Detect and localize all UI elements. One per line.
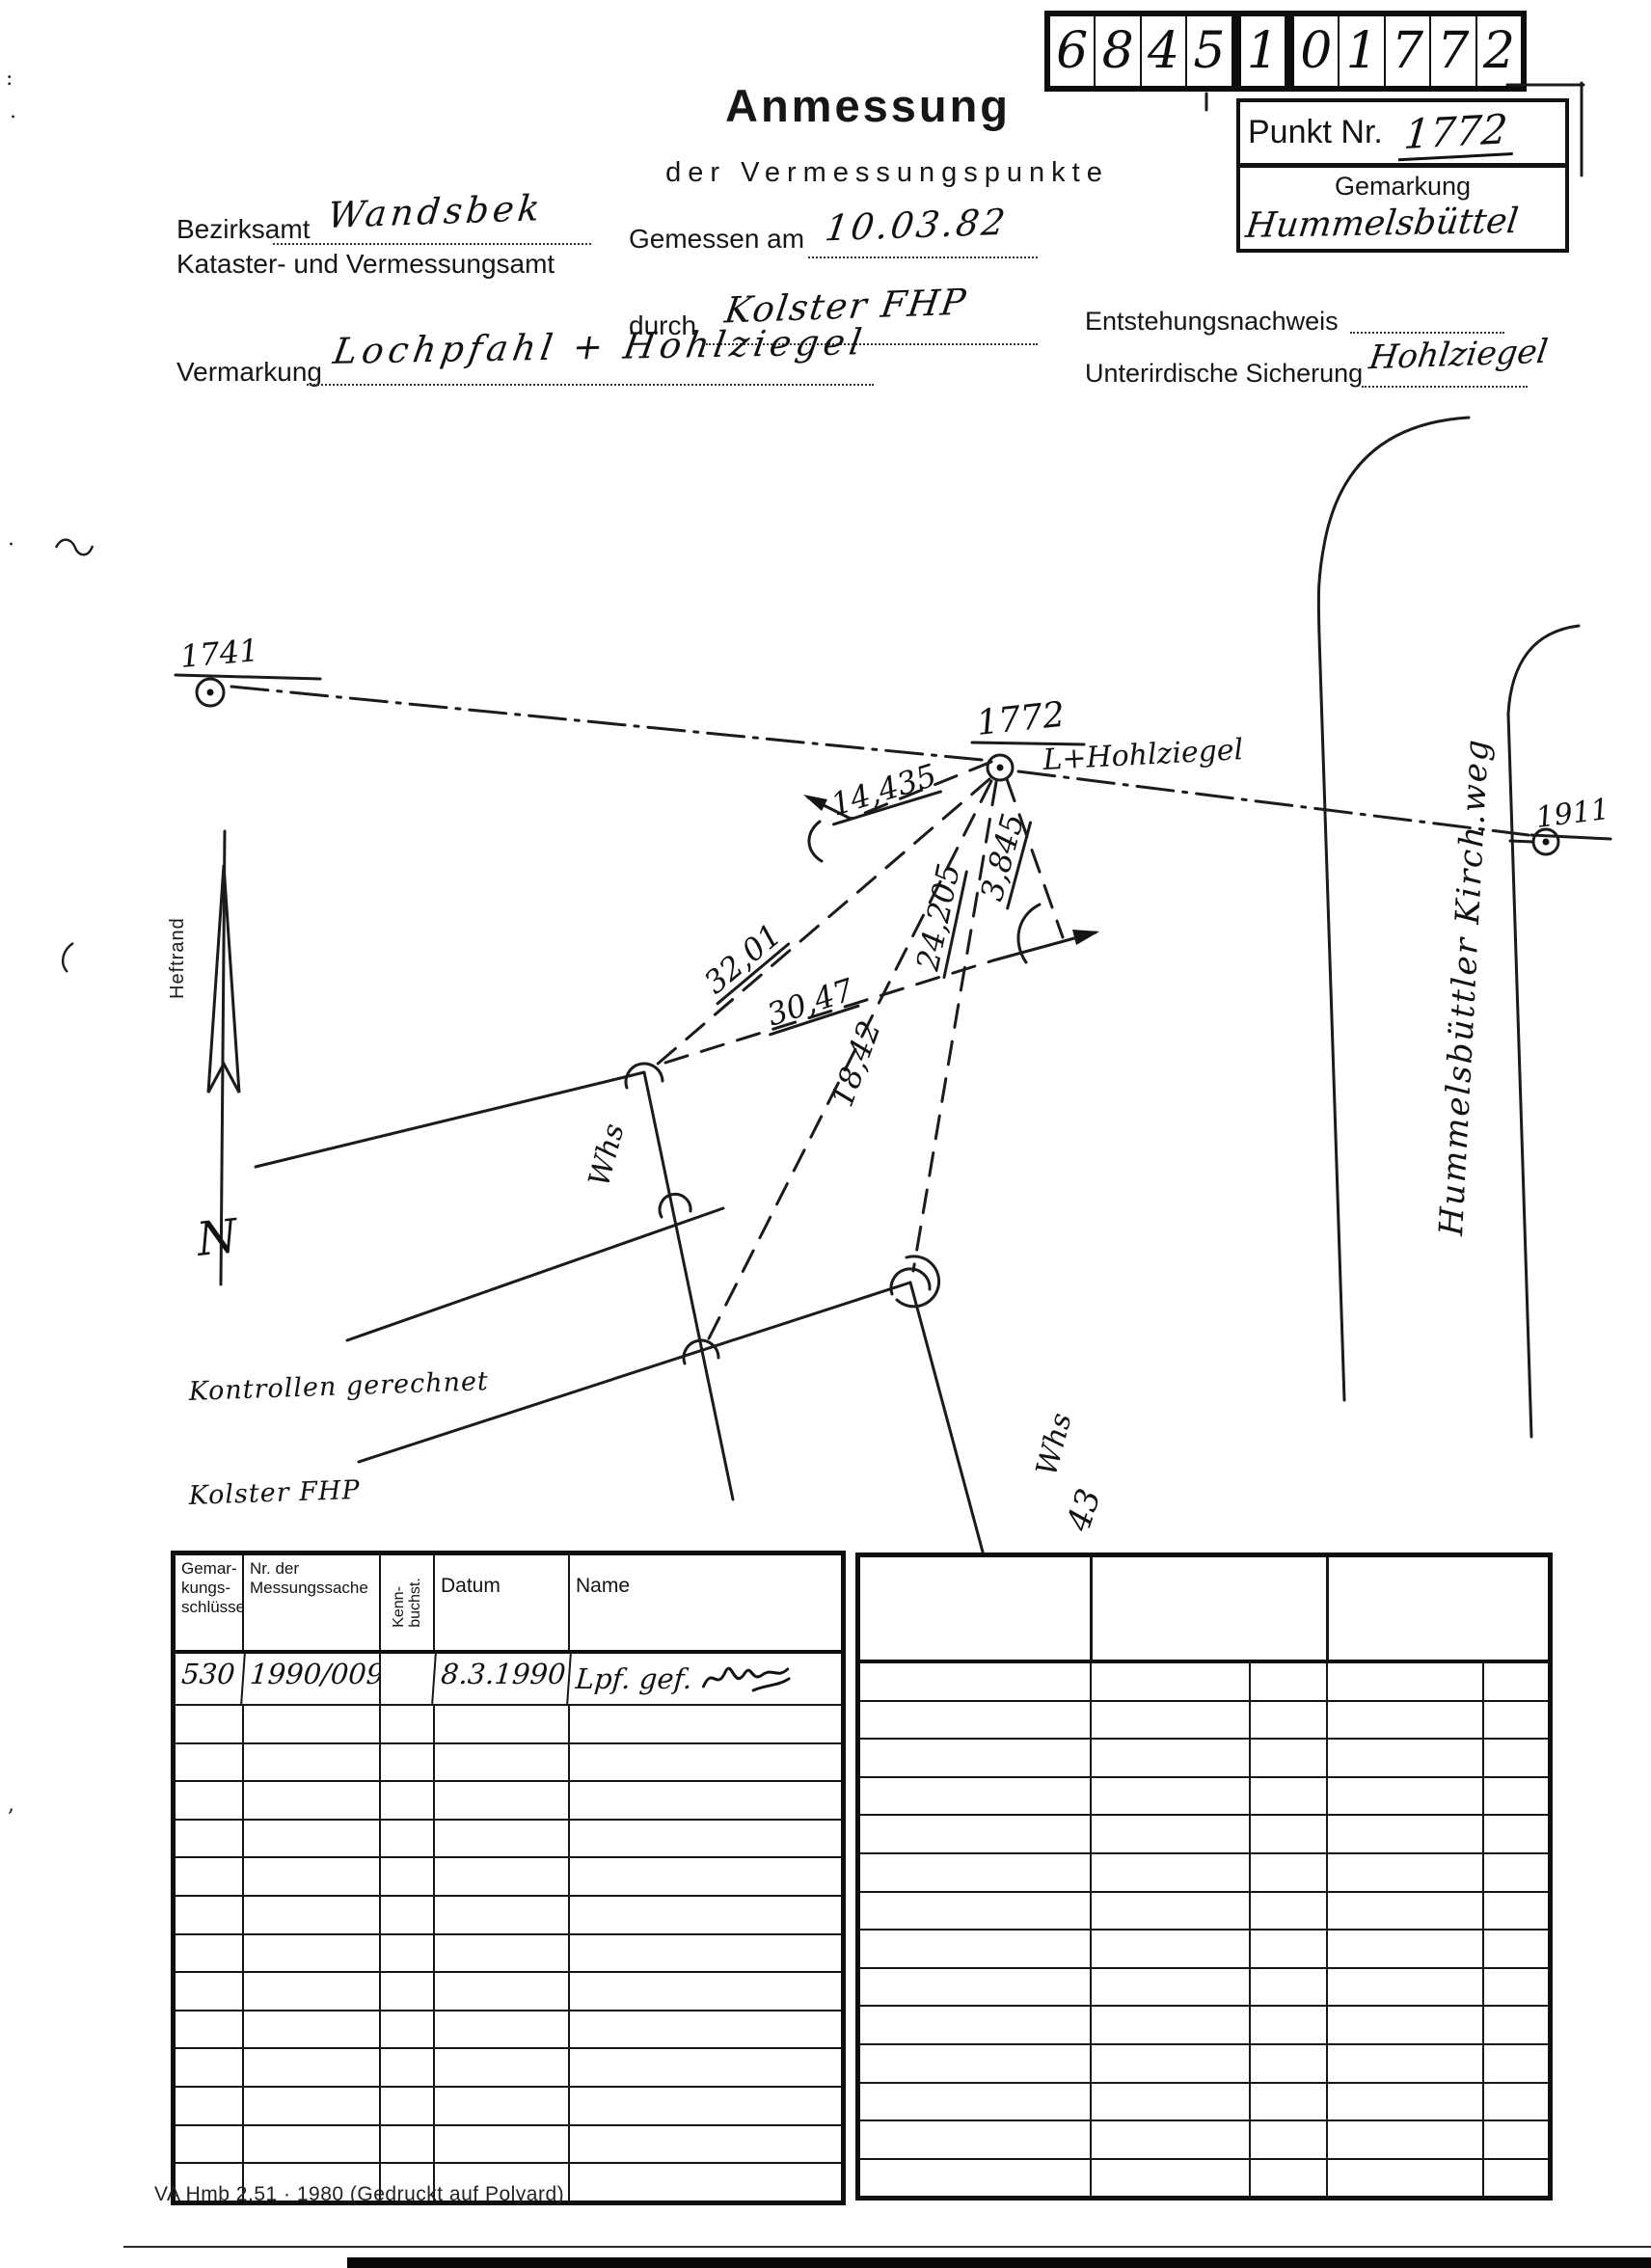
table-empty-cell — [1326, 2045, 1482, 2082]
table-empty-cell — [1326, 2007, 1482, 2043]
point-1741-underline — [176, 675, 320, 679]
table-empty-cell — [1249, 1740, 1326, 1776]
scanned-survey-form: 6 8 4 5 1 0 1 7 7 2 Anmessung der Vermes… — [0, 0, 1651, 2268]
table-empty-cell — [1482, 1702, 1548, 1739]
log-cell-schluessel: 530 — [174, 1654, 244, 1704]
table-empty-cell — [1090, 1702, 1249, 1739]
table-empty-cell — [1249, 2160, 1326, 2197]
right-table-empty-rows — [860, 1663, 1548, 2196]
table-empty-cell — [242, 1858, 379, 1895]
table-empty-cell — [242, 2126, 379, 2163]
distance-label-14-435: 14,435 — [826, 757, 940, 823]
table-empty-cell — [1326, 1778, 1482, 1815]
scan-speck: . — [10, 99, 16, 123]
continuation-header-cell — [1326, 1557, 1548, 1660]
table-empty-cell — [1249, 1663, 1326, 1700]
table-empty-row — [860, 2045, 1548, 2084]
table-empty-cell — [1326, 1930, 1482, 1967]
measure-arrow-head — [1072, 930, 1099, 945]
table-empty-cell — [1326, 1893, 1482, 1930]
table-empty-cell — [1090, 1740, 1249, 1776]
table-empty-cell — [568, 2049, 841, 2086]
note-line-1: Kontrollen gerechnet — [187, 1366, 489, 1407]
angle-arc-bearing — [809, 822, 822, 861]
binding-margin-label: Heftrand — [167, 917, 188, 999]
table-empty-cell — [379, 1744, 433, 1781]
scan-scribble — [56, 540, 93, 555]
table-empty-cell — [1482, 1663, 1548, 1700]
table-empty-cell — [242, 2011, 379, 2048]
table-empty-cell — [860, 1816, 1090, 1852]
table-empty-cell — [860, 1930, 1090, 1967]
table-empty-row — [176, 1935, 841, 1974]
road-edge-left — [1318, 418, 1469, 1400]
scan-scribble — [63, 943, 73, 972]
table-empty-cell — [379, 1973, 433, 2010]
north-label: N — [193, 1209, 242, 1267]
table-empty-cell — [379, 1706, 433, 1742]
table-empty-cell — [1249, 2045, 1326, 2082]
table-empty-cell — [379, 2011, 433, 2048]
table-empty-cell — [1090, 1663, 1249, 1700]
table-empty-cell — [242, 1897, 379, 1933]
log-cell-kennbuchst — [379, 1654, 433, 1704]
table-empty-cell — [1090, 1816, 1249, 1852]
table-empty-row — [176, 2126, 841, 2165]
log-table-row: 530 1990/009 8.3.1990 Lpf. gef. — [176, 1654, 841, 1706]
table-empty-cell — [860, 1663, 1090, 1700]
log-table-header: Gemar- kungs- schlüssel Nr. der Messungs… — [176, 1555, 841, 1654]
baseline-1741-1772 — [231, 687, 982, 760]
table-empty-cell — [176, 1858, 242, 1895]
log-table-empty-rows — [176, 1706, 841, 2200]
table-empty-cell — [379, 2088, 433, 2124]
table-empty-cell — [379, 1935, 433, 1972]
table-empty-cell — [1249, 2084, 1326, 2120]
table-empty-cell — [860, 1969, 1090, 2006]
table-empty-cell — [176, 1897, 242, 1933]
log-header-datum: Datum — [433, 1555, 568, 1650]
table-empty-row — [860, 1969, 1548, 2008]
street-name-label: Hummelsbüttler Kirch.weg — [1432, 737, 1497, 1237]
table-empty-cell — [379, 1782, 433, 1819]
table-empty-row — [176, 1821, 841, 1859]
table-empty-cell — [1090, 1778, 1249, 1815]
point-1911-underline — [1531, 835, 1610, 839]
measurement-log-table: Gemar- kungs- schlüssel Nr. der Messungs… — [171, 1551, 846, 2205]
point-dot-1911 — [1543, 839, 1550, 846]
table-empty-cell — [176, 2088, 242, 2124]
table-empty-row — [860, 2121, 1548, 2160]
table-empty-cell — [1249, 1702, 1326, 1739]
log-cell-name: Lpf. gef. — [566, 1654, 843, 1704]
table-empty-cell — [176, 1973, 242, 2010]
table-empty-cell — [860, 2007, 1090, 2043]
table-empty-cell — [176, 2126, 242, 2163]
table-empty-cell — [1482, 2121, 1548, 2158]
building-label-whs-left: Whs — [582, 1120, 632, 1190]
table-empty-cell — [860, 1893, 1090, 1930]
table-empty-row — [860, 1740, 1548, 1778]
table-empty-cell — [433, 1897, 568, 1933]
point-label-1911: 1911 — [1534, 793, 1611, 835]
distance-label-32-01: 32,01 — [697, 916, 789, 1001]
table-empty-cell — [433, 1858, 568, 1895]
table-empty-cell — [242, 1973, 379, 2010]
table-empty-cell — [1482, 1969, 1548, 2006]
table-empty-row — [176, 1744, 841, 1783]
table-empty-cell — [379, 2049, 433, 2086]
table-empty-cell — [860, 1702, 1090, 1739]
log-cell-datum: 8.3.1990 — [431, 1654, 570, 1704]
table-empty-cell — [1482, 2045, 1548, 2082]
table-empty-row — [860, 1854, 1548, 1893]
corner-arc-D — [660, 1194, 690, 1217]
table-empty-cell — [1249, 1969, 1326, 2006]
table-empty-cell — [1326, 2121, 1482, 2158]
table-empty-cell — [433, 1782, 568, 1819]
table-empty-cell — [860, 2045, 1090, 2082]
table-empty-cell — [379, 1858, 433, 1895]
baseline-1772-1911 — [1018, 771, 1529, 835]
point-dot-1741 — [207, 689, 214, 696]
point-label-1772: 1772 — [975, 695, 1067, 743]
table-empty-cell — [1482, 1778, 1548, 1815]
table-empty-cell — [433, 1706, 568, 1742]
table-empty-cell — [433, 1935, 568, 1972]
table-empty-row — [176, 2049, 841, 2088]
table-empty-row — [860, 2084, 1548, 2122]
table-empty-row — [860, 2007, 1548, 2045]
table-empty-cell — [1326, 1969, 1482, 2006]
table-empty-cell — [176, 1744, 242, 1781]
table-empty-cell — [433, 2011, 568, 2048]
table-empty-cell — [433, 2126, 568, 2163]
table-empty-cell — [379, 1897, 433, 1933]
point-dot-1772 — [997, 765, 1004, 771]
note-line-2: Kolster FHP — [187, 1475, 361, 1511]
table-empty-cell — [1482, 2160, 1548, 2197]
table-empty-cell — [433, 2088, 568, 2124]
building-edge — [256, 1072, 644, 1167]
table-empty-cell — [1249, 1778, 1326, 1815]
signature-scribble — [698, 1661, 794, 1696]
continuation-table-header — [860, 1557, 1548, 1663]
table-empty-row — [176, 2088, 841, 2126]
continuation-header-cell — [860, 1557, 1090, 1660]
table-empty-cell — [568, 2011, 841, 2048]
table-empty-row — [860, 1893, 1548, 1931]
table-empty-cell — [242, 1821, 379, 1857]
table-empty-cell — [568, 1897, 841, 1933]
table-empty-cell — [1482, 1930, 1548, 1967]
table-empty-cell — [433, 2049, 568, 2086]
table-empty-cell — [242, 1706, 379, 1742]
scan-edge-bar — [347, 2257, 1651, 2268]
table-empty-cell — [379, 1821, 433, 1857]
building-label-whs-right: Whs — [1030, 1410, 1079, 1479]
table-empty-cell — [1326, 1816, 1482, 1852]
angle-arc-road — [1018, 904, 1040, 962]
scan-speck: : — [6, 67, 13, 91]
table-empty-row — [860, 1930, 1548, 1969]
distance-label-24-205: 24,205 — [908, 860, 967, 974]
table-empty-cell — [1090, 2045, 1249, 2082]
table-empty-cell — [1326, 2084, 1482, 2120]
table-empty-cell — [1090, 1893, 1249, 1930]
table-empty-cell — [1482, 1740, 1548, 1776]
table-empty-cell — [242, 2049, 379, 2086]
table-empty-cell — [242, 1935, 379, 1972]
table-empty-cell — [568, 1858, 841, 1895]
table-empty-cell — [568, 2088, 841, 2124]
table-empty-cell — [242, 1744, 379, 1781]
building-wall — [910, 1282, 988, 1570]
distance-label-30-47: 30,47 — [763, 971, 858, 1034]
building-edge — [347, 1208, 723, 1340]
table-empty-row — [860, 2160, 1548, 2197]
corner-bracket-mark — [1507, 83, 1583, 175]
table-empty-cell — [433, 1821, 568, 1857]
table-empty-cell — [1090, 1969, 1249, 2006]
log-cell-name-text: Lpf. gef. — [575, 1662, 693, 1695]
table-empty-cell — [568, 1706, 841, 1742]
table-empty-cell — [176, 2011, 242, 2048]
continuation-table — [855, 1552, 1553, 2200]
table-empty-cell — [1326, 1702, 1482, 1739]
log-header-gemarkungsschluessel: Gemar- kungs- schlüssel — [176, 1555, 242, 1650]
building-wall — [644, 1072, 733, 1499]
table-empty-row — [176, 1858, 841, 1897]
table-empty-cell — [1482, 2007, 1548, 2043]
table-empty-cell — [242, 2088, 379, 2124]
log-header-kennbuchst: Kenn- buchst. — [379, 1555, 433, 1650]
table-empty-row — [860, 1816, 1548, 1854]
table-empty-row — [176, 1782, 841, 1821]
point-label-1741: 1741 — [178, 632, 259, 675]
table-empty-row — [176, 1897, 841, 1935]
table-empty-cell — [568, 1782, 841, 1819]
table-empty-cell — [1090, 2084, 1249, 2120]
point-1772-marker-type-label: L+Hohlziegel — [1042, 733, 1244, 777]
table-empty-cell — [1482, 2084, 1548, 2120]
table-empty-row — [176, 1706, 841, 1744]
log-header-messungssache: Nr. der Messungssache — [242, 1555, 379, 1650]
page-bottom-rule — [123, 2246, 1651, 2248]
table-empty-row — [176, 1973, 841, 2011]
table-empty-cell — [1090, 1930, 1249, 1967]
log-cell-messungssache: 1990/009 — [240, 1654, 381, 1704]
table-empty-cell — [860, 2160, 1090, 2197]
table-empty-cell — [860, 2084, 1090, 2120]
table-empty-cell — [568, 2164, 841, 2200]
table-empty-cell — [1326, 2160, 1482, 2197]
house-number-label: 43 — [1059, 1484, 1109, 1536]
table-empty-cell — [176, 1706, 242, 1742]
table-empty-cell — [1249, 2121, 1326, 2158]
table-empty-cell — [433, 1744, 568, 1781]
table-empty-cell — [1090, 2160, 1249, 2197]
table-empty-row — [860, 1663, 1548, 1702]
table-empty-cell — [568, 1935, 841, 1972]
table-empty-cell — [379, 2126, 433, 2163]
scan-speck: · — [8, 533, 14, 557]
table-empty-cell — [1249, 2007, 1326, 2043]
table-empty-cell — [176, 2049, 242, 2086]
table-empty-cell — [1326, 1663, 1482, 1700]
table-empty-cell — [1090, 1854, 1249, 1891]
table-empty-cell — [1249, 1930, 1326, 1967]
table-empty-cell — [860, 1854, 1090, 1891]
table-empty-row — [860, 1778, 1548, 1817]
corner-arc-B2 — [897, 1256, 939, 1307]
table-empty-cell — [1482, 1816, 1548, 1852]
road-edge-right — [1508, 626, 1579, 1437]
bearing-arrow-head — [803, 795, 827, 811]
table-empty-cell — [1326, 1854, 1482, 1891]
log-header-name: Name — [568, 1555, 841, 1650]
table-empty-cell — [860, 2121, 1090, 2158]
table-empty-cell — [568, 1973, 841, 2010]
distance-label-18-42: 18,42 — [824, 1016, 888, 1112]
form-imprint: VA Hmb 2.51 · 1980 (Gedruckt auf Polyard… — [154, 2183, 564, 2206]
table-empty-cell — [1326, 1740, 1482, 1776]
table-empty-cell — [176, 1935, 242, 1972]
table-empty-cell — [1249, 1854, 1326, 1891]
table-empty-cell — [1090, 2007, 1249, 2043]
table-empty-cell — [568, 1744, 841, 1781]
table-empty-cell — [1482, 1854, 1548, 1891]
table-empty-cell — [568, 2126, 841, 2163]
table-empty-cell — [1249, 1816, 1326, 1852]
table-empty-cell — [860, 1778, 1090, 1815]
table-empty-cell — [242, 1782, 379, 1819]
table-empty-cell — [176, 1821, 242, 1857]
table-empty-cell — [1090, 2121, 1249, 2158]
continuation-header-cell — [1090, 1557, 1326, 1660]
table-empty-cell — [860, 1740, 1090, 1776]
table-empty-row — [176, 2011, 841, 2050]
table-empty-cell — [433, 1973, 568, 2010]
table-empty-cell — [1482, 1893, 1548, 1930]
log-header-kennbuchst-text: Kenn- buchst. — [391, 1578, 423, 1628]
table-empty-cell — [1249, 1893, 1326, 1930]
scan-speck: , — [8, 1793, 14, 1817]
table-empty-row — [860, 1702, 1548, 1741]
table-empty-cell — [176, 1782, 242, 1819]
table-empty-cell — [568, 1821, 841, 1857]
